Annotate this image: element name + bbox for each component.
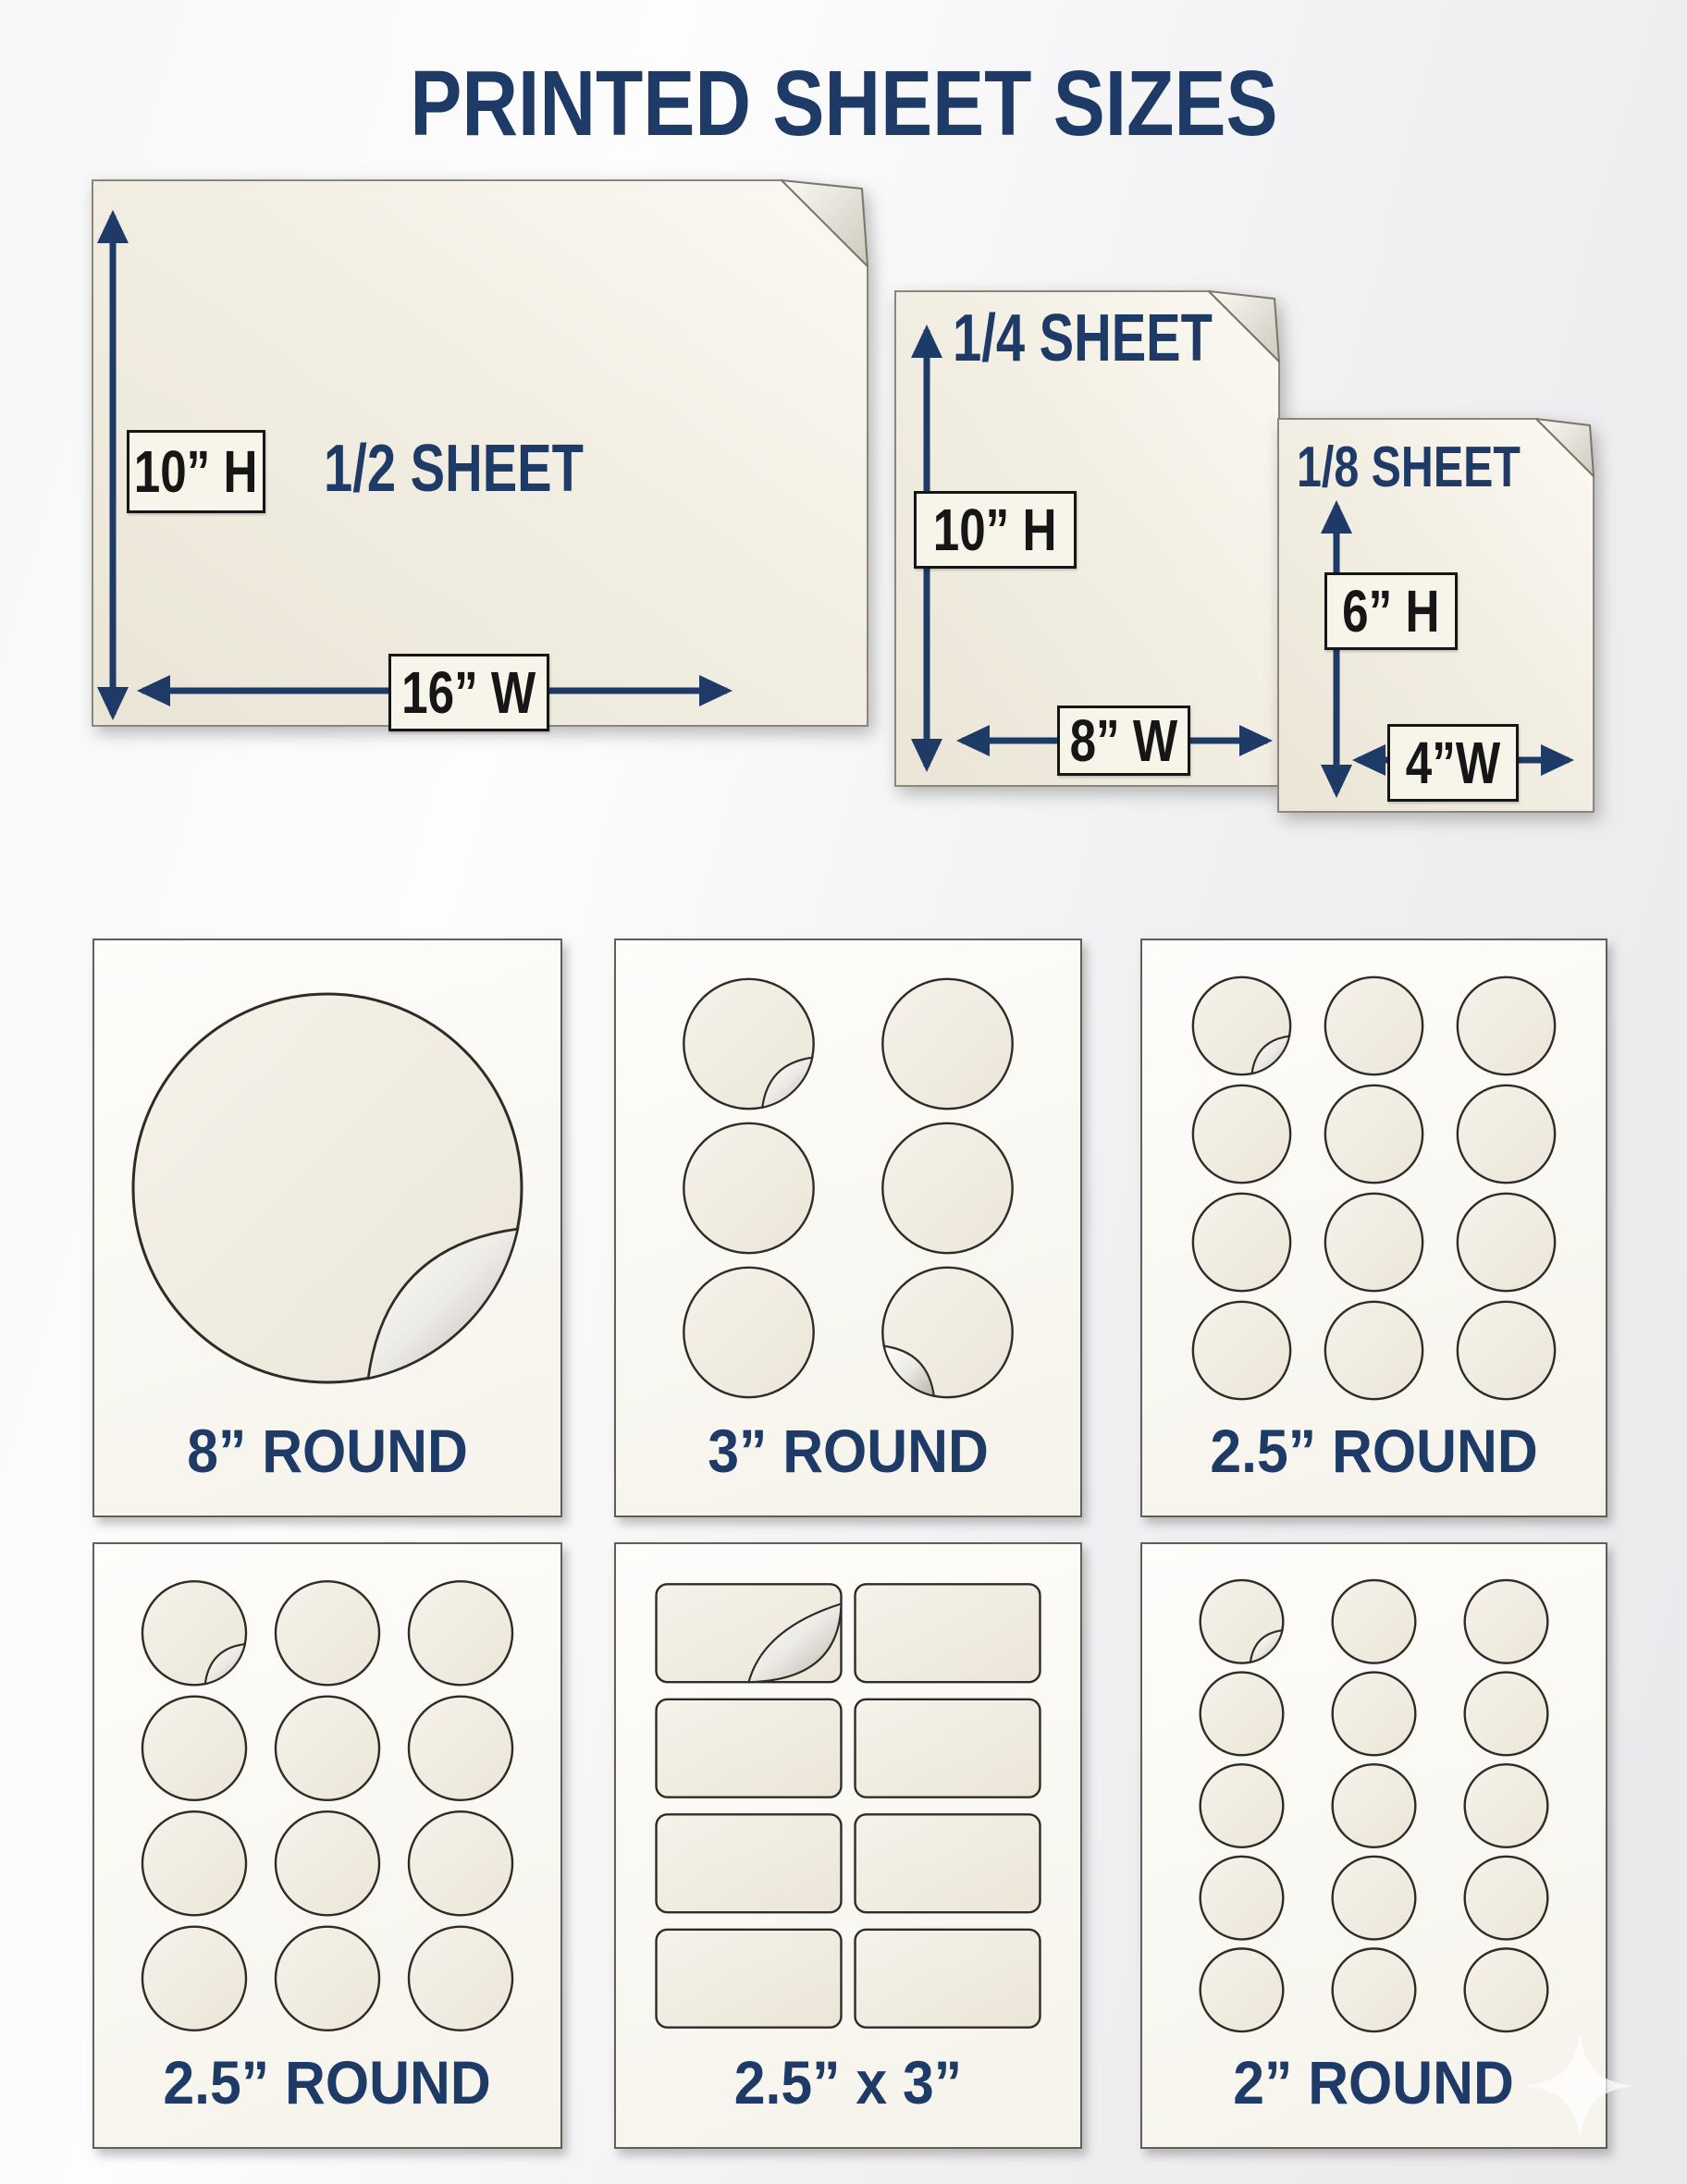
half-height-label: 10” H <box>127 430 265 513</box>
sheet-label: 2.5” x 3” <box>616 2050 1080 2132</box>
half-sheet-name: 1/2 SHEET <box>324 430 657 508</box>
eighth-height-label: 6” H <box>1324 572 1458 650</box>
quarter-sheet-name: 1/4 SHEET <box>953 306 1286 371</box>
sticker-sheet-2point5-x-3: 2.5” x 3” <box>614 1542 1082 2149</box>
eighth-width-label-text: 4”W <box>1406 729 1500 797</box>
quarter-height-label: 10” H <box>914 491 1077 569</box>
eighth-width-label: 4”W <box>1387 724 1519 802</box>
sheet-label-text: 3” ROUND <box>708 1418 989 1483</box>
quarter-sheet: 1/4 SHEET 10” H 8” W <box>895 291 1279 786</box>
sparkle-icon <box>1526 2031 1633 2141</box>
eighth-height-label-text: 6” H <box>1342 577 1439 645</box>
sheet-label: 3” ROUND <box>616 1418 1080 1501</box>
half-width-label: 16” W <box>388 654 549 731</box>
eighth-sheet-name-text: 1/8 SHEET <box>1297 435 1521 500</box>
sheet-label-text: 2.5” ROUND <box>1210 1418 1537 1483</box>
half-sheet-name-text: 1/2 SHEET <box>324 431 584 507</box>
sheet-label-text: 2.5” x 3” <box>734 2050 962 2115</box>
quarter-width-label: 8” W <box>1057 706 1190 776</box>
half-width-label-text: 16” W <box>401 658 536 727</box>
page-title: PRINTED SHEET SIZES <box>0 57 1687 178</box>
sticker-sheet-2point5-round-top: 2.5” ROUND <box>1140 939 1607 1517</box>
sheet-label: 2.5” ROUND <box>1142 1418 1606 1501</box>
sheet-label-text: 8” ROUND <box>187 1418 468 1483</box>
sheet-label-text: 2” ROUND <box>1234 2050 1515 2115</box>
sticker-sheet-3-round: 3” ROUND <box>614 939 1082 1517</box>
eighth-sheet-name: 1/8 SHEET <box>1297 441 1583 493</box>
infographic-canvas: PRINTED SHEET SIZES 10” H 1/2 SHEET 16” … <box>0 0 1687 2184</box>
eighth-sheet: 1/8 SHEET 6” H 4”W <box>1278 419 1594 812</box>
half-sheet: 10” H 1/2 SHEET 16” W <box>92 180 868 726</box>
sheet-label: 8” ROUND <box>94 1418 560 1501</box>
page-title-text: PRINTED SHEET SIZES <box>410 57 1277 150</box>
sticker-sheet-2point5-round-bottom: 2.5” ROUND <box>92 1542 562 2149</box>
sticker-sheet-8-round: 8” ROUND <box>92 939 562 1517</box>
quarter-sheet-name-text: 1/4 SHEET <box>953 301 1213 376</box>
half-height-label-text: 10” H <box>134 437 258 506</box>
quarter-width-label-text: 8” W <box>1070 706 1178 775</box>
sheet-label-text: 2.5” ROUND <box>164 2050 491 2115</box>
quarter-height-label-text: 10” H <box>933 496 1057 564</box>
sheet-label: 2.5” ROUND <box>94 2050 560 2132</box>
